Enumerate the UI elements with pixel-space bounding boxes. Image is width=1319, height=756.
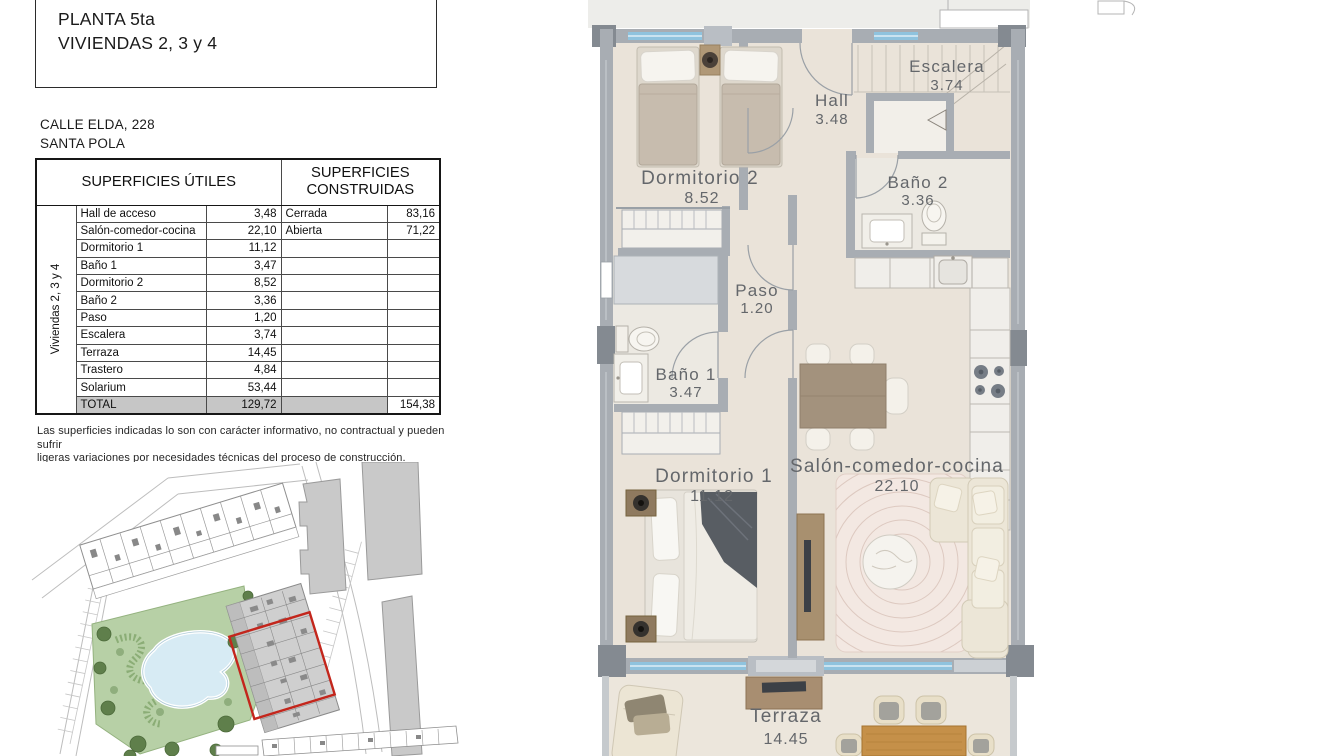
area-row: Terraza 14,45 <box>36 344 440 361</box>
address-city: SANTA POLA <box>40 134 155 153</box>
area-bano1: 3.47 <box>669 384 702 401</box>
area-row: Viviendas 2, 3 y 4 Hall de acceso 3,48 C… <box>36 205 440 222</box>
wardrobe-dormitorio1 <box>622 412 720 454</box>
disclaimer-line1: Las superficies indicadas lo son con car… <box>37 425 472 452</box>
area-row: Baño 2 3,36 <box>36 292 440 309</box>
header-superficies-utiles: SUPERFICIES ÚTILES <box>36 159 281 205</box>
area-row: Dormitorio 1 11,12 <box>36 240 440 257</box>
label-dormitorio2: Dormitorio 2 <box>641 168 759 189</box>
disclaimer: Las superficies indicadas lo son con car… <box>37 425 472 466</box>
label-salon: Salón-comedor-cocina <box>790 456 1004 477</box>
label-paso: Paso <box>735 281 779 300</box>
area-row: Baño 1 3,47 <box>36 257 440 274</box>
area-hall: 3.48 <box>815 111 848 128</box>
label-escalera: Escalera <box>909 57 985 76</box>
area-row: Salón-comedor-cocina 22,10 Abierta 71,22 <box>36 222 440 239</box>
area-total-row: TOTAL 129,72 154,38 <box>36 396 440 413</box>
group-label: Viviendas 2, 3 y 4 <box>50 264 62 355</box>
areas-table: SUPERFICIES ÚTILES SUPERFICIES CONSTRUID… <box>35 158 441 415</box>
area-dormitorio1: 11.12 <box>690 488 734 505</box>
header-superficies-construidas: SUPERFICIES CONSTRUIDAS <box>281 159 440 205</box>
title-box: PLANTA 5ta VIVIENDAS 2, 3 y 4 <box>35 0 437 88</box>
label-bano1: Baño 1 <box>655 365 716 384</box>
area-row: Solarium 53,44 <box>36 379 440 396</box>
plan-sheet: PLANTA 5ta VIVIENDAS 2, 3 y 4 CALLE ELDA… <box>0 0 1319 756</box>
area-paso: 1.20 <box>740 300 773 317</box>
label-hall: Hall <box>815 91 849 110</box>
label-bano2: Baño 2 <box>887 173 948 192</box>
shower-bano1 <box>601 256 718 304</box>
label-terraza: Terraza <box>750 706 822 727</box>
sink-bano2 <box>862 214 912 248</box>
address-street: CALLE ELDA, 228 <box>40 115 155 134</box>
wardrobe-dormitorio2 <box>622 210 722 248</box>
terrace-lounge-chair <box>611 684 684 756</box>
area-row: Trastero 4,84 <box>36 362 440 379</box>
plan-title-line2: VIVIENDAS 2, 3 y 4 <box>58 31 436 55</box>
area-row: Dormitorio 2 8,52 <box>36 275 440 292</box>
area-escalera: 3.74 <box>930 77 963 94</box>
label-dormitorio1: Dormitorio 1 <box>655 466 773 487</box>
plan-title-line1: PLANTA 5ta <box>58 7 436 31</box>
bed-dormitorio1 <box>626 490 757 642</box>
area-dormitorio2: 8.52 <box>684 190 719 207</box>
tv-sideboard-salon <box>797 514 824 640</box>
toilet-bano1 <box>616 326 659 352</box>
group-label-cell: Viviendas 2, 3 y 4 <box>36 205 76 414</box>
area-salon: 22.10 <box>874 478 919 495</box>
address-block: CALLE ELDA, 228 SANTA POLA <box>40 115 155 153</box>
sink-bano1 <box>614 354 648 402</box>
site-plan-map <box>20 462 460 756</box>
area-row: Paso 1,20 <box>36 309 440 326</box>
area-row: Escalera 3,74 <box>36 327 440 344</box>
terrace-table <box>862 726 966 756</box>
terrace-tv-cabinet <box>746 677 822 709</box>
area-terraza: 14.45 <box>763 731 808 748</box>
floor-plan: Dormitorio 2 8.52 Hall 3.48 Escalera 3.7… <box>588 0 1148 756</box>
area-bano2: 3.36 <box>901 192 934 209</box>
areas-header-row: SUPERFICIES ÚTILES SUPERFICIES CONSTRUID… <box>36 159 440 205</box>
